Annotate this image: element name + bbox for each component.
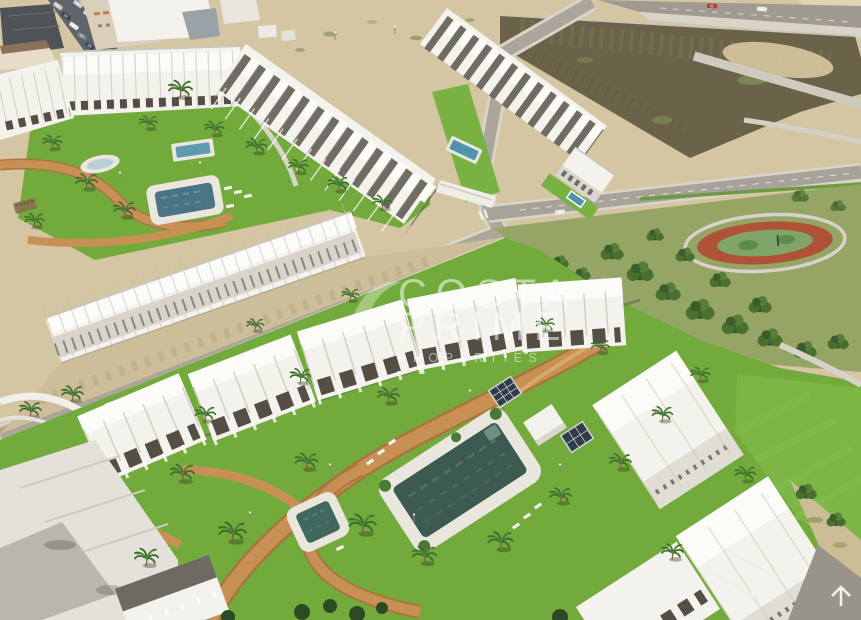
apartment-block — [518, 277, 626, 352]
red-car — [707, 3, 717, 8]
aerial-scene — [0, 0, 861, 620]
townhouse-row-north — [60, 46, 244, 116]
parked-car — [757, 6, 767, 11]
white-building — [220, 0, 260, 24]
aerial-render-image: COSTA PRIME PROPERTIES — [0, 0, 861, 620]
